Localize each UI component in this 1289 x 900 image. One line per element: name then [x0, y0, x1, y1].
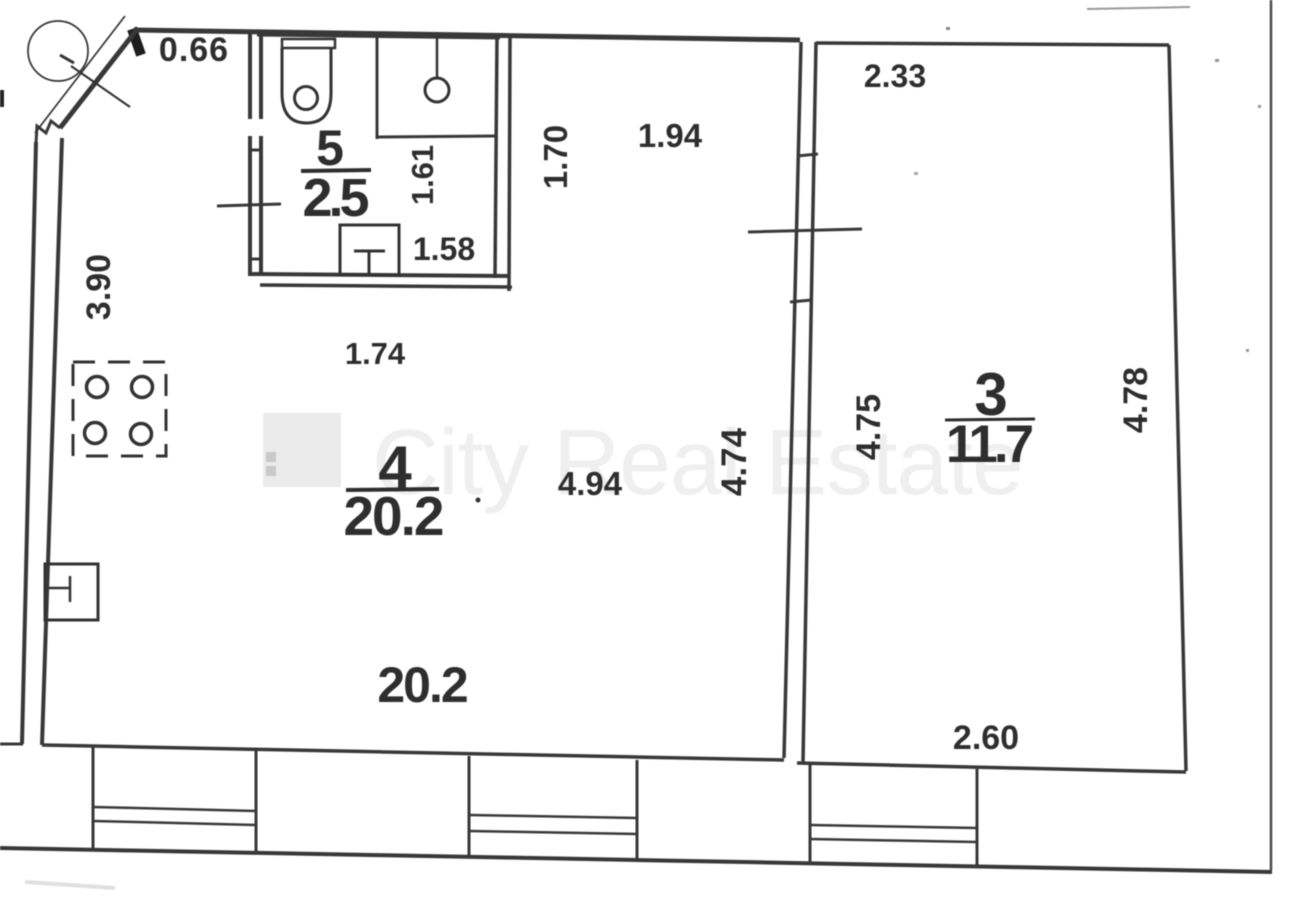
svg-text:1.58: 1.58: [413, 231, 475, 267]
svg-text:11.7: 11.7: [946, 415, 1033, 474]
svg-text:0.66: 0.66: [159, 31, 229, 69]
svg-text:1.70: 1.70: [537, 125, 574, 189]
svg-text:4.74: 4.74: [715, 427, 754, 496]
svg-text:2.60: 2.60: [953, 719, 1019, 757]
svg-text:1.74: 1.74: [345, 336, 406, 371]
svg-text:20.2: 20.2: [377, 657, 467, 713]
svg-text:20.2: 20.2: [343, 485, 442, 547]
svg-text:4.94: 4.94: [558, 465, 623, 502]
svg-text:4.75: 4.75: [850, 394, 888, 460]
svg-text:City Real Estate: City Real Estate: [372, 410, 1023, 514]
svg-text:4.78: 4.78: [1117, 367, 1155, 433]
svg-text:2.33: 2.33: [864, 58, 926, 94]
svg-text:1.94: 1.94: [638, 117, 703, 154]
svg-text:1.61: 1.61: [405, 145, 440, 205]
svg-text:3.90: 3.90: [80, 254, 118, 320]
svg-text:2.5: 2.5: [302, 168, 368, 228]
